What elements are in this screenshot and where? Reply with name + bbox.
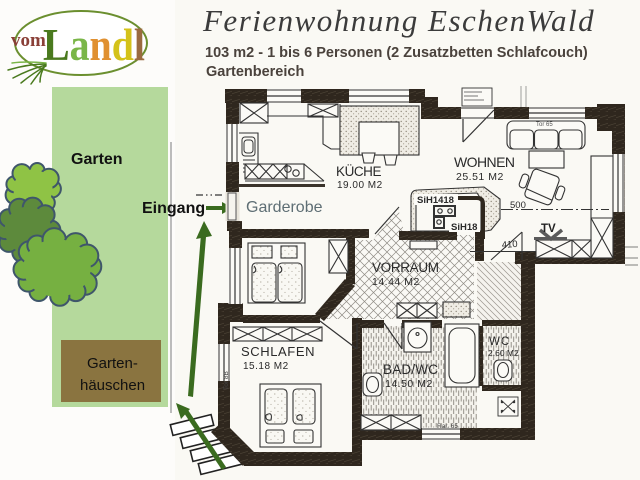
svg-text:Eingang: Eingang	[142, 200, 205, 217]
svg-text:KÜCHE: KÜCHE	[336, 164, 382, 179]
svg-text:103 m2 - 1 bis 6 Personen (2: 103 m2 - 1 bis 6 Personen (2 Zusatzbette…	[205, 45, 588, 61]
svg-text:14.50 M2: 14.50 M2	[385, 378, 433, 390]
svg-text:VORRAUM: VORRAUM	[372, 260, 439, 275]
svg-text:vom: vom	[11, 30, 46, 51]
svg-text:Rar. 65: Rar. 65	[437, 423, 458, 430]
svg-text:SCHLAFEN: SCHLAFEN	[241, 344, 315, 359]
svg-text:410: 410	[501, 239, 518, 251]
svg-text:Gartenbereich: Gartenbereich	[206, 64, 304, 80]
svg-text:2.60 M2: 2.60 M2	[488, 348, 519, 358]
svg-text:Ferienwohnung EschenWald: Ferienwohnung EschenWald	[202, 3, 595, 38]
svg-text:Tor 65: Tor 65	[536, 122, 553, 128]
svg-text:SiH1418: SiH1418	[417, 195, 454, 206]
svg-text:Landl: Landl	[43, 20, 145, 70]
svg-text:BAD/WC: BAD/WC	[383, 362, 439, 377]
svg-text:25.51 M2: 25.51 M2	[456, 171, 504, 183]
svg-text:SiH18: SiH18	[451, 222, 477, 233]
svg-text:WOHNEN: WOHNEN	[454, 154, 515, 170]
svg-text:19.00 M2: 19.00 M2	[337, 180, 383, 191]
svg-text:15.18 M2: 15.18 M2	[243, 361, 289, 372]
svg-text:WC: WC	[489, 336, 510, 348]
svg-text:Garten-: Garten-	[87, 355, 138, 372]
svg-text:Garten: Garten	[71, 151, 123, 168]
svg-text:Tor 8B: Tor 8B	[223, 371, 230, 390]
svg-text:500: 500	[510, 200, 526, 211]
svg-text:häuschen: häuschen	[80, 377, 145, 394]
svg-text:TV: TV	[541, 223, 556, 235]
svg-text:Garderobe: Garderobe	[246, 199, 323, 216]
svg-text:14.44 M2: 14.44 M2	[372, 276, 420, 288]
